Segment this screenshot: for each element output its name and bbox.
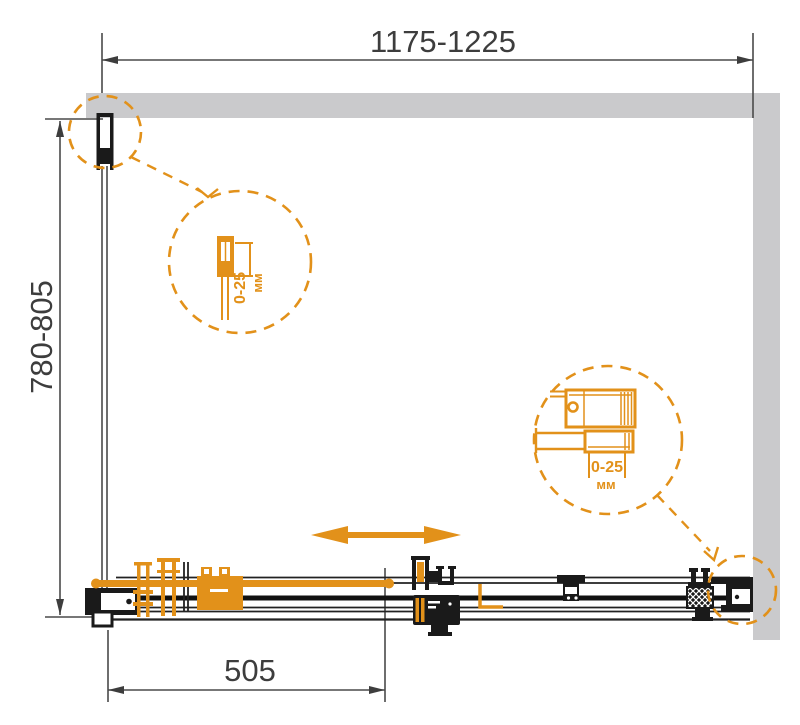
arrowhead-left (108, 686, 124, 694)
lower-profile-outline (585, 431, 633, 452)
arrowhead-right (369, 686, 385, 694)
profile-arm-bottom (721, 605, 753, 612)
detail-callout-top-left: 0-25 мм (69, 96, 311, 333)
post (425, 560, 429, 590)
profile-side (230, 240, 234, 277)
carriage-slot (210, 589, 228, 592)
door-panel-label: 505 (224, 653, 276, 688)
arrowhead-left (102, 56, 118, 64)
detail-circle (169, 191, 311, 333)
arrowhead-down (56, 599, 64, 615)
left-dimension: 780-805 (24, 119, 112, 617)
leader-line (131, 157, 202, 192)
wall-profile-slot (732, 589, 750, 604)
guide-dot (567, 596, 570, 599)
roller-post (161, 559, 165, 616)
foot-base (692, 617, 713, 621)
guide-slot (565, 587, 577, 594)
depth-range-label: 780-805 (24, 280, 59, 394)
screw-hole (569, 403, 578, 412)
center-roller-carriage (411, 556, 460, 636)
diagram-canvas: 1175-1225 780-805 505 (0, 0, 800, 725)
carriage-housing (413, 595, 460, 625)
housing-dot (448, 602, 451, 605)
walls (86, 93, 780, 640)
u-prong (691, 572, 696, 583)
guide-dot (574, 596, 577, 599)
u-base (438, 581, 454, 585)
u-prong (703, 572, 708, 583)
roller-crossbar (133, 602, 153, 606)
carriage-body (197, 576, 243, 610)
foot (695, 608, 710, 618)
u-prong (438, 567, 442, 583)
roller-flange (157, 570, 180, 573)
profile-arm-top (711, 577, 753, 584)
foot (431, 625, 448, 633)
leader-arrowhead (704, 547, 718, 560)
slide-direction-arrow (311, 526, 461, 544)
roller-post (172, 559, 176, 616)
screw-dot (126, 599, 132, 605)
bracket-foot (93, 612, 112, 626)
leader-line (657, 495, 710, 551)
carriage-ear-hole (222, 569, 227, 574)
post (412, 560, 416, 590)
housing-mark (428, 606, 436, 609)
installation-diagram: 1175-1225 780-805 505 (0, 0, 800, 725)
arrowhead-up (56, 121, 64, 137)
post-cap (411, 556, 430, 560)
unit-label: мм (250, 273, 265, 292)
wall-right (753, 93, 780, 640)
post-insert (417, 562, 424, 582)
u-prong (450, 567, 454, 583)
adjustment-range-label: 0-25 (232, 272, 249, 304)
u-cap (701, 568, 710, 572)
arrow-shaft (346, 532, 426, 538)
width-range-label: 1175-1225 (370, 24, 516, 59)
arrowhead-left (311, 526, 348, 544)
roller-crossbar (133, 590, 153, 594)
right-roller-and-wall-profile (687, 568, 753, 621)
housing-stripe (416, 598, 420, 622)
roller-post-cap (157, 558, 180, 562)
side-block (429, 571, 438, 582)
rail-end-cap (384, 579, 394, 589)
housing-mark (428, 601, 440, 604)
screw-dot (735, 595, 739, 599)
housing-stripe (421, 598, 425, 622)
profile-side (97, 113, 101, 170)
foot-base (428, 632, 452, 636)
adjustment-range-label: 0-25 (591, 459, 623, 476)
profile-side (217, 240, 221, 277)
arrowhead-right (424, 526, 461, 544)
u-base (688, 582, 711, 586)
arrowhead-right (737, 56, 753, 64)
wall-profile-top-left (97, 113, 114, 170)
carriage-ear-hole (204, 569, 209, 574)
unit-label: мм (596, 477, 615, 492)
profile-side (110, 113, 114, 170)
left-glass-panel (97, 113, 114, 590)
wall-top (86, 93, 780, 118)
roller-post-cap (134, 562, 152, 566)
rail-end-cap (91, 579, 101, 589)
u-cap (689, 568, 698, 572)
profile-clamp (100, 148, 111, 164)
guide-top (557, 575, 585, 583)
bottom-dimension: 505 (108, 568, 385, 702)
